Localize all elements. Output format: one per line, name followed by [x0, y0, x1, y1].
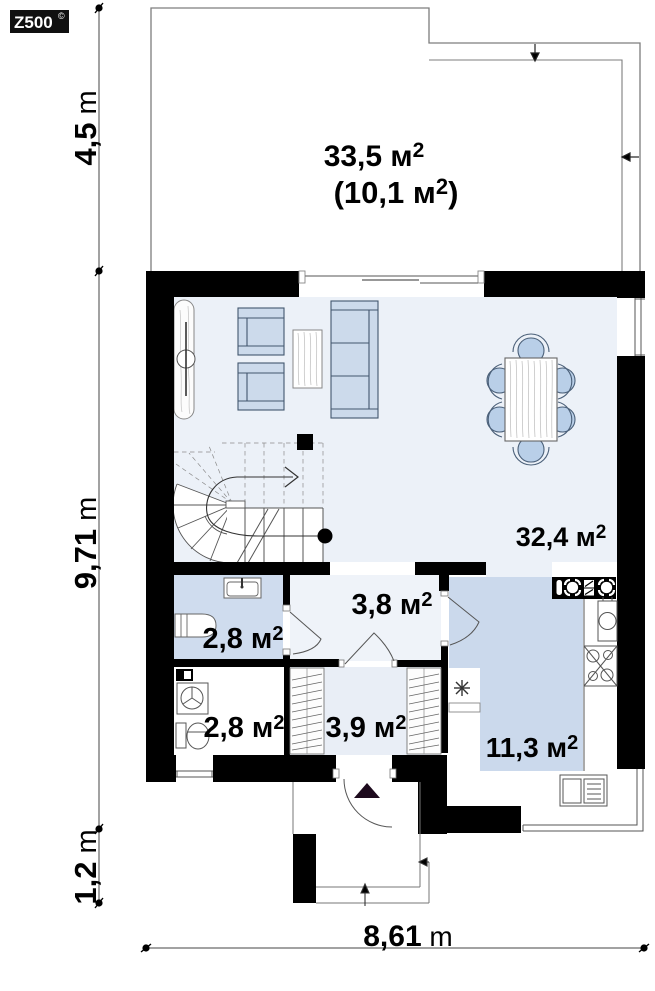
svg-text:8,61 m: 8,61 m — [363, 920, 453, 953]
svg-text:2,8 м2: 2,8 м2 — [204, 712, 285, 744]
svg-text:3,9 м2: 3,9 м2 — [326, 712, 407, 744]
svg-text:1,2 m: 1,2 m — [68, 829, 103, 904]
svg-text:9,71 m: 9,71 m — [68, 497, 103, 590]
svg-text:2,8 м2: 2,8 м2 — [203, 623, 284, 655]
svg-text:32,4 м2: 32,4 м2 — [516, 522, 607, 552]
svg-text:33,5 м2: 33,5 м2 — [324, 139, 425, 173]
svg-text:11,3 м2: 11,3 м2 — [486, 732, 579, 763]
svg-text:4,5 m: 4,5 m — [68, 90, 103, 165]
svg-text:3,8 м2: 3,8 м2 — [352, 589, 433, 621]
svg-text:©: © — [58, 11, 65, 21]
svg-text:Z500: Z500 — [14, 13, 53, 32]
